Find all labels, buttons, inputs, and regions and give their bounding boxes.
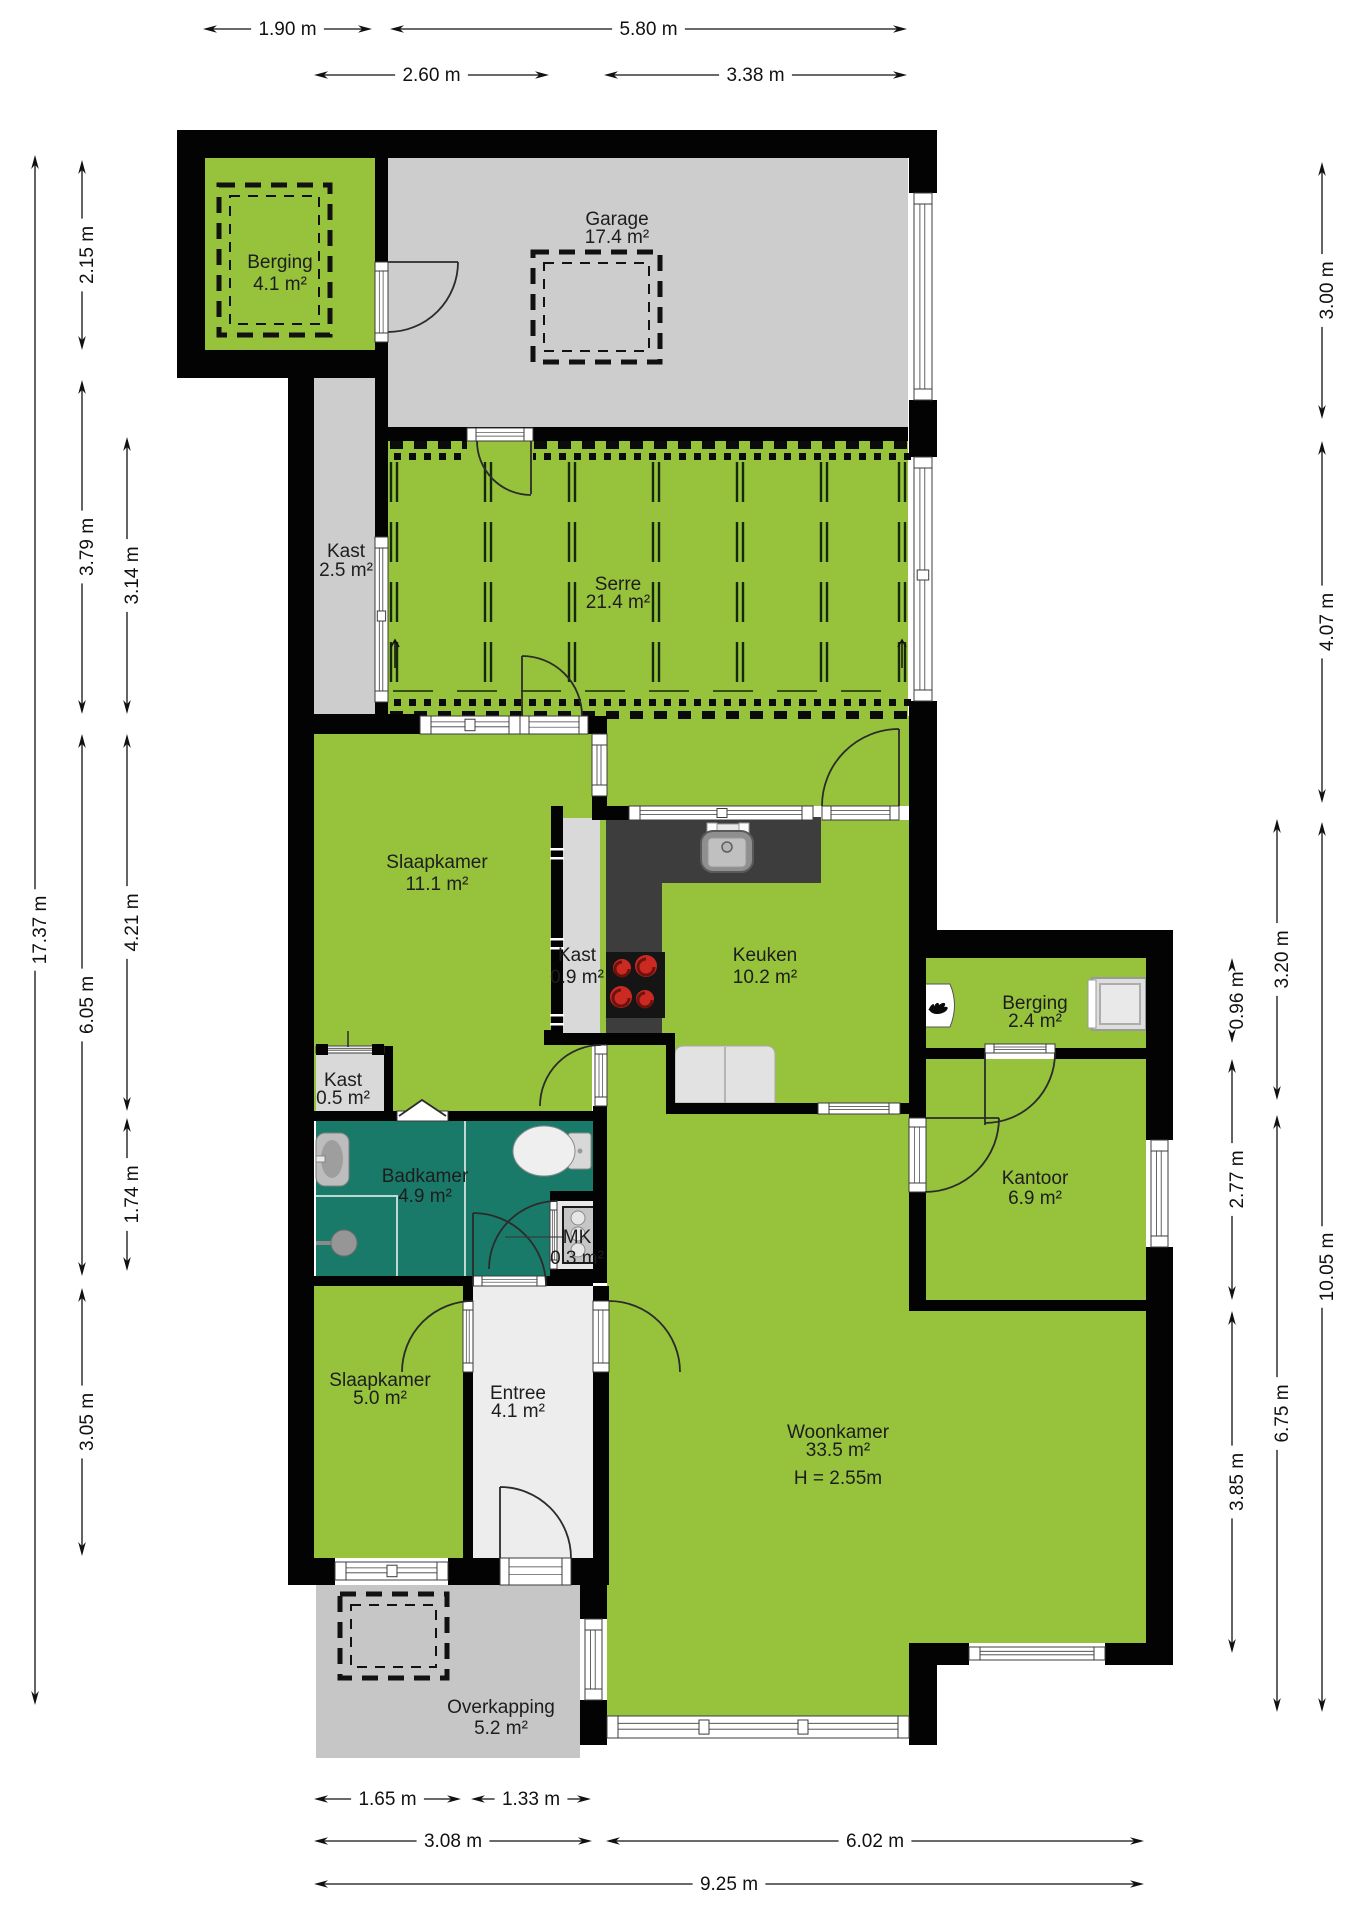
svg-text:10.05 m: 10.05 m	[1317, 1233, 1338, 1302]
svg-text:1.65 m: 1.65 m	[358, 1789, 416, 1810]
svg-text:21.4 m²: 21.4 m²	[586, 592, 650, 613]
svg-text:Kantoor: Kantoor	[1002, 1168, 1069, 1189]
svg-text:11.1 m²: 11.1 m²	[405, 874, 468, 895]
svg-text:3.00 m: 3.00 m	[1317, 261, 1338, 319]
svg-text:2.5 m²: 2.5 m²	[319, 560, 373, 581]
svg-text:H = 2.55m: H = 2.55m	[794, 1468, 882, 1489]
svg-text:6.75 m: 6.75 m	[1272, 1384, 1293, 1442]
svg-text:6.9 m²: 6.9 m²	[1008, 1188, 1062, 1209]
svg-text:0.96 m: 0.96 m	[1227, 971, 1248, 1029]
svg-text:Overkapping: Overkapping	[447, 1697, 555, 1718]
svg-text:1.33 m: 1.33 m	[502, 1789, 560, 1810]
svg-text:4.9 m²: 4.9 m²	[398, 1186, 452, 1207]
svg-text:MK: MK	[563, 1227, 592, 1248]
svg-text:4.1 m²: 4.1 m²	[253, 274, 307, 295]
svg-text:2.4 m²: 2.4 m²	[1008, 1011, 1062, 1032]
svg-text:4.07 m: 4.07 m	[1317, 593, 1338, 651]
svg-text:2.77 m: 2.77 m	[1227, 1150, 1248, 1208]
svg-text:17.37 m: 17.37 m	[30, 896, 51, 965]
svg-text:0.3 m²: 0.3 m²	[550, 1248, 604, 1269]
svg-text:6.05 m: 6.05 m	[77, 976, 98, 1034]
svg-text:3.20 m: 3.20 m	[1272, 930, 1293, 988]
svg-text:10.2 m²: 10.2 m²	[733, 967, 797, 988]
svg-text:17.4 m²: 17.4 m²	[585, 227, 649, 248]
svg-text:9.25 m: 9.25 m	[700, 1874, 758, 1895]
svg-text:3.08 m: 3.08 m	[424, 1831, 482, 1852]
svg-text:0.9 m²: 0.9 m²	[550, 967, 604, 988]
svg-text:3.85 m: 3.85 m	[1227, 1453, 1248, 1511]
svg-text:0.5 m²: 0.5 m²	[316, 1088, 370, 1109]
svg-text:5.0 m²: 5.0 m²	[353, 1388, 407, 1409]
svg-text:Kast: Kast	[558, 945, 597, 966]
svg-text:5.2 m²: 5.2 m²	[474, 1718, 528, 1739]
svg-text:3.05 m: 3.05 m	[77, 1393, 98, 1451]
svg-text:6.02 m: 6.02 m	[846, 1831, 904, 1852]
svg-text:5.80 m: 5.80 m	[619, 19, 677, 40]
svg-text:3.38 m: 3.38 m	[726, 65, 784, 86]
svg-text:Berging: Berging	[247, 252, 313, 273]
svg-text:2.15 m: 2.15 m	[77, 226, 98, 284]
svg-text:1.90 m: 1.90 m	[258, 19, 316, 40]
svg-text:Kast: Kast	[327, 541, 366, 562]
svg-text:33.5 m²: 33.5 m²	[806, 1440, 870, 1461]
svg-text:1.74 m: 1.74 m	[122, 1165, 143, 1223]
svg-text:Badkamer: Badkamer	[382, 1166, 469, 1187]
svg-text:Keuken: Keuken	[733, 945, 797, 966]
svg-text:4.21 m: 4.21 m	[122, 893, 143, 951]
svg-text:3.14 m: 3.14 m	[122, 546, 143, 604]
svg-text:4.1 m²: 4.1 m²	[491, 1401, 545, 1422]
svg-text:Slaapkamer: Slaapkamer	[386, 852, 488, 873]
svg-text:3.79 m: 3.79 m	[77, 518, 98, 576]
svg-text:2.60 m: 2.60 m	[402, 65, 460, 86]
